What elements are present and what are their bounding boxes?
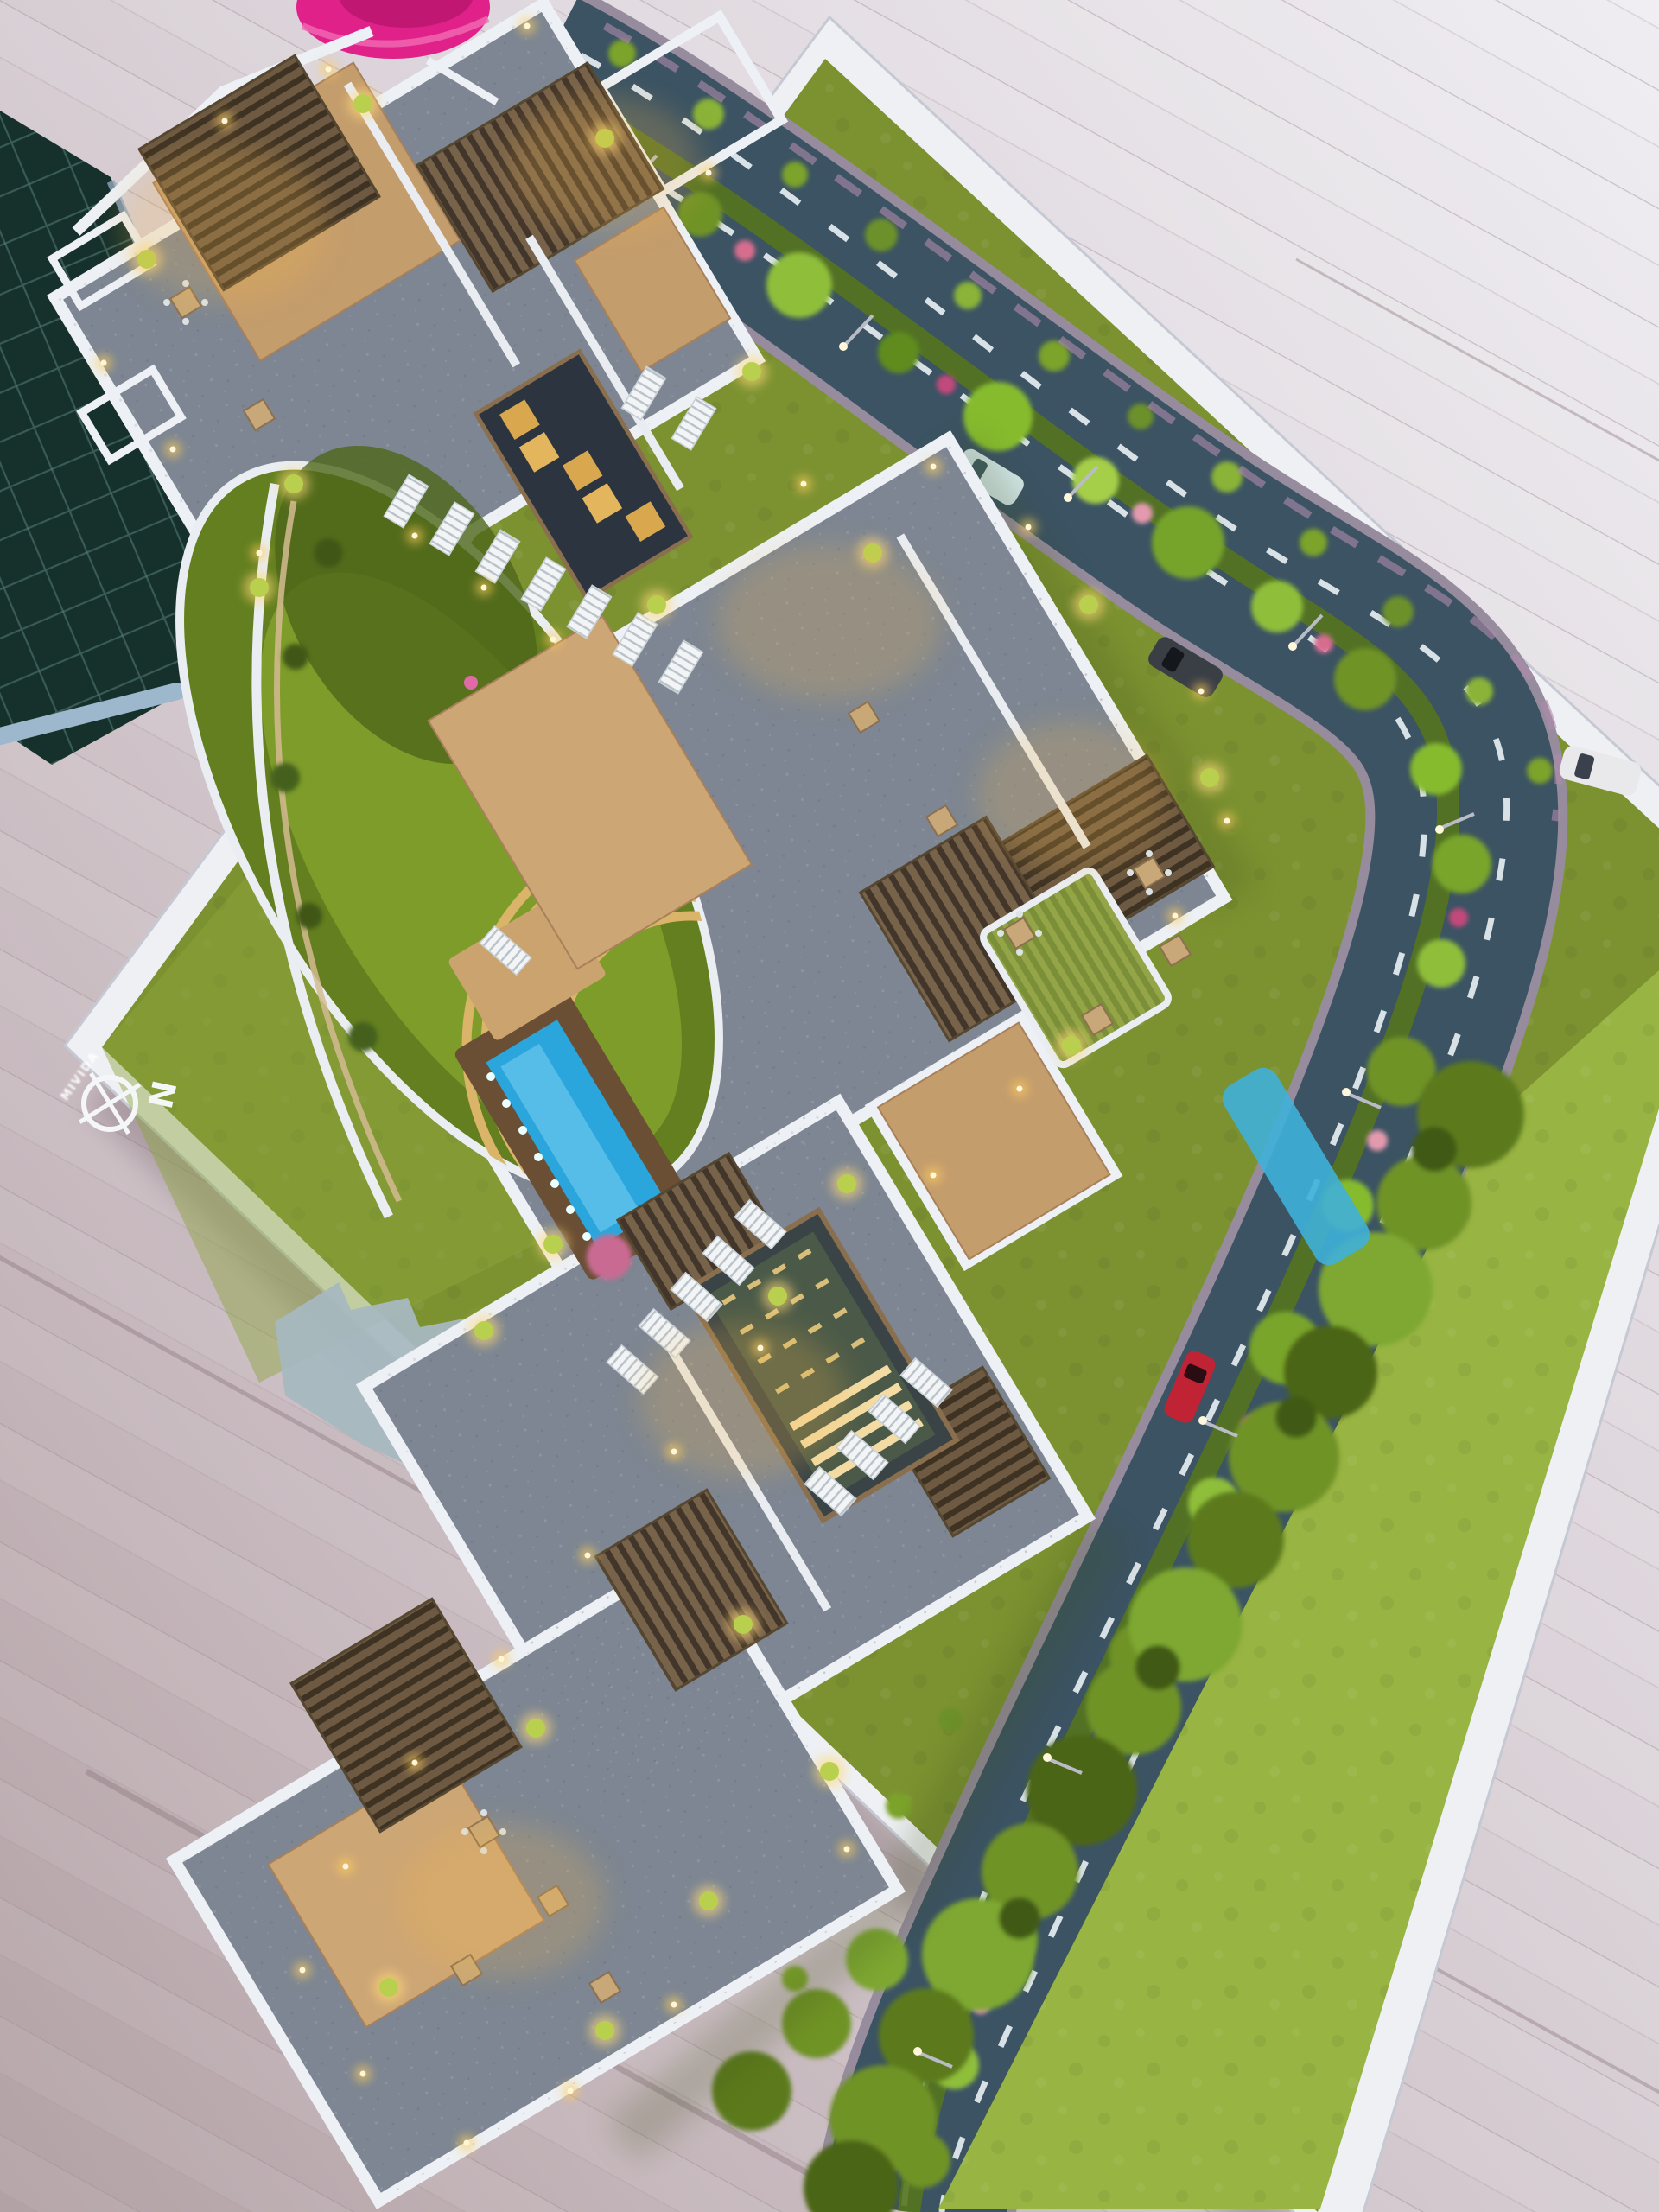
pool-flowerbed [587,1235,632,1280]
scene-canvas: N MIVIDA [0,0,1659,2212]
photo-of-architectural-model: N MIVIDA [0,0,1659,2212]
